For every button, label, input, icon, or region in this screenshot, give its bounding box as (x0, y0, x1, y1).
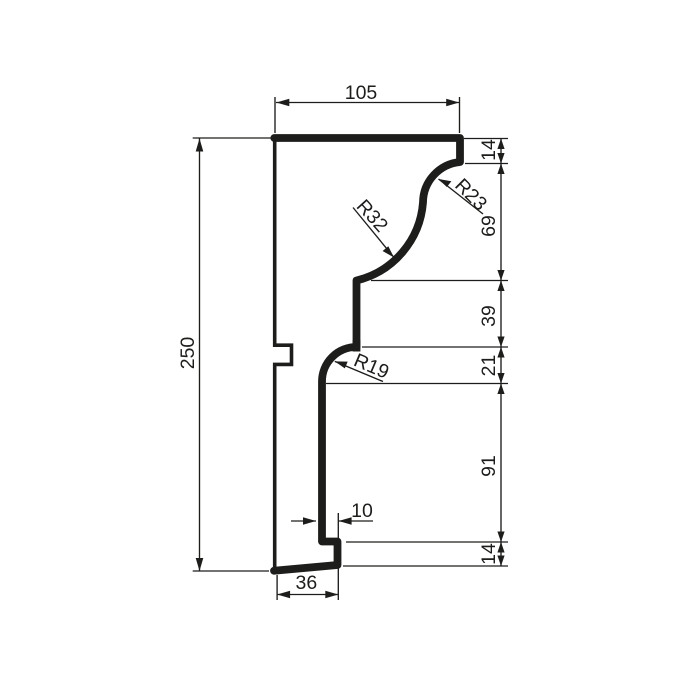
svg-text:14: 14 (478, 139, 500, 161)
svg-text:36: 36 (296, 572, 318, 594)
svg-text:39: 39 (478, 305, 500, 327)
svg-text:105: 105 (345, 82, 378, 104)
svg-text:10: 10 (351, 500, 373, 522)
svg-text:21: 21 (478, 355, 500, 377)
svg-text:69: 69 (478, 215, 500, 237)
svg-text:14: 14 (478, 543, 500, 565)
svg-text:91: 91 (478, 455, 500, 477)
svg-text:250: 250 (177, 337, 199, 370)
